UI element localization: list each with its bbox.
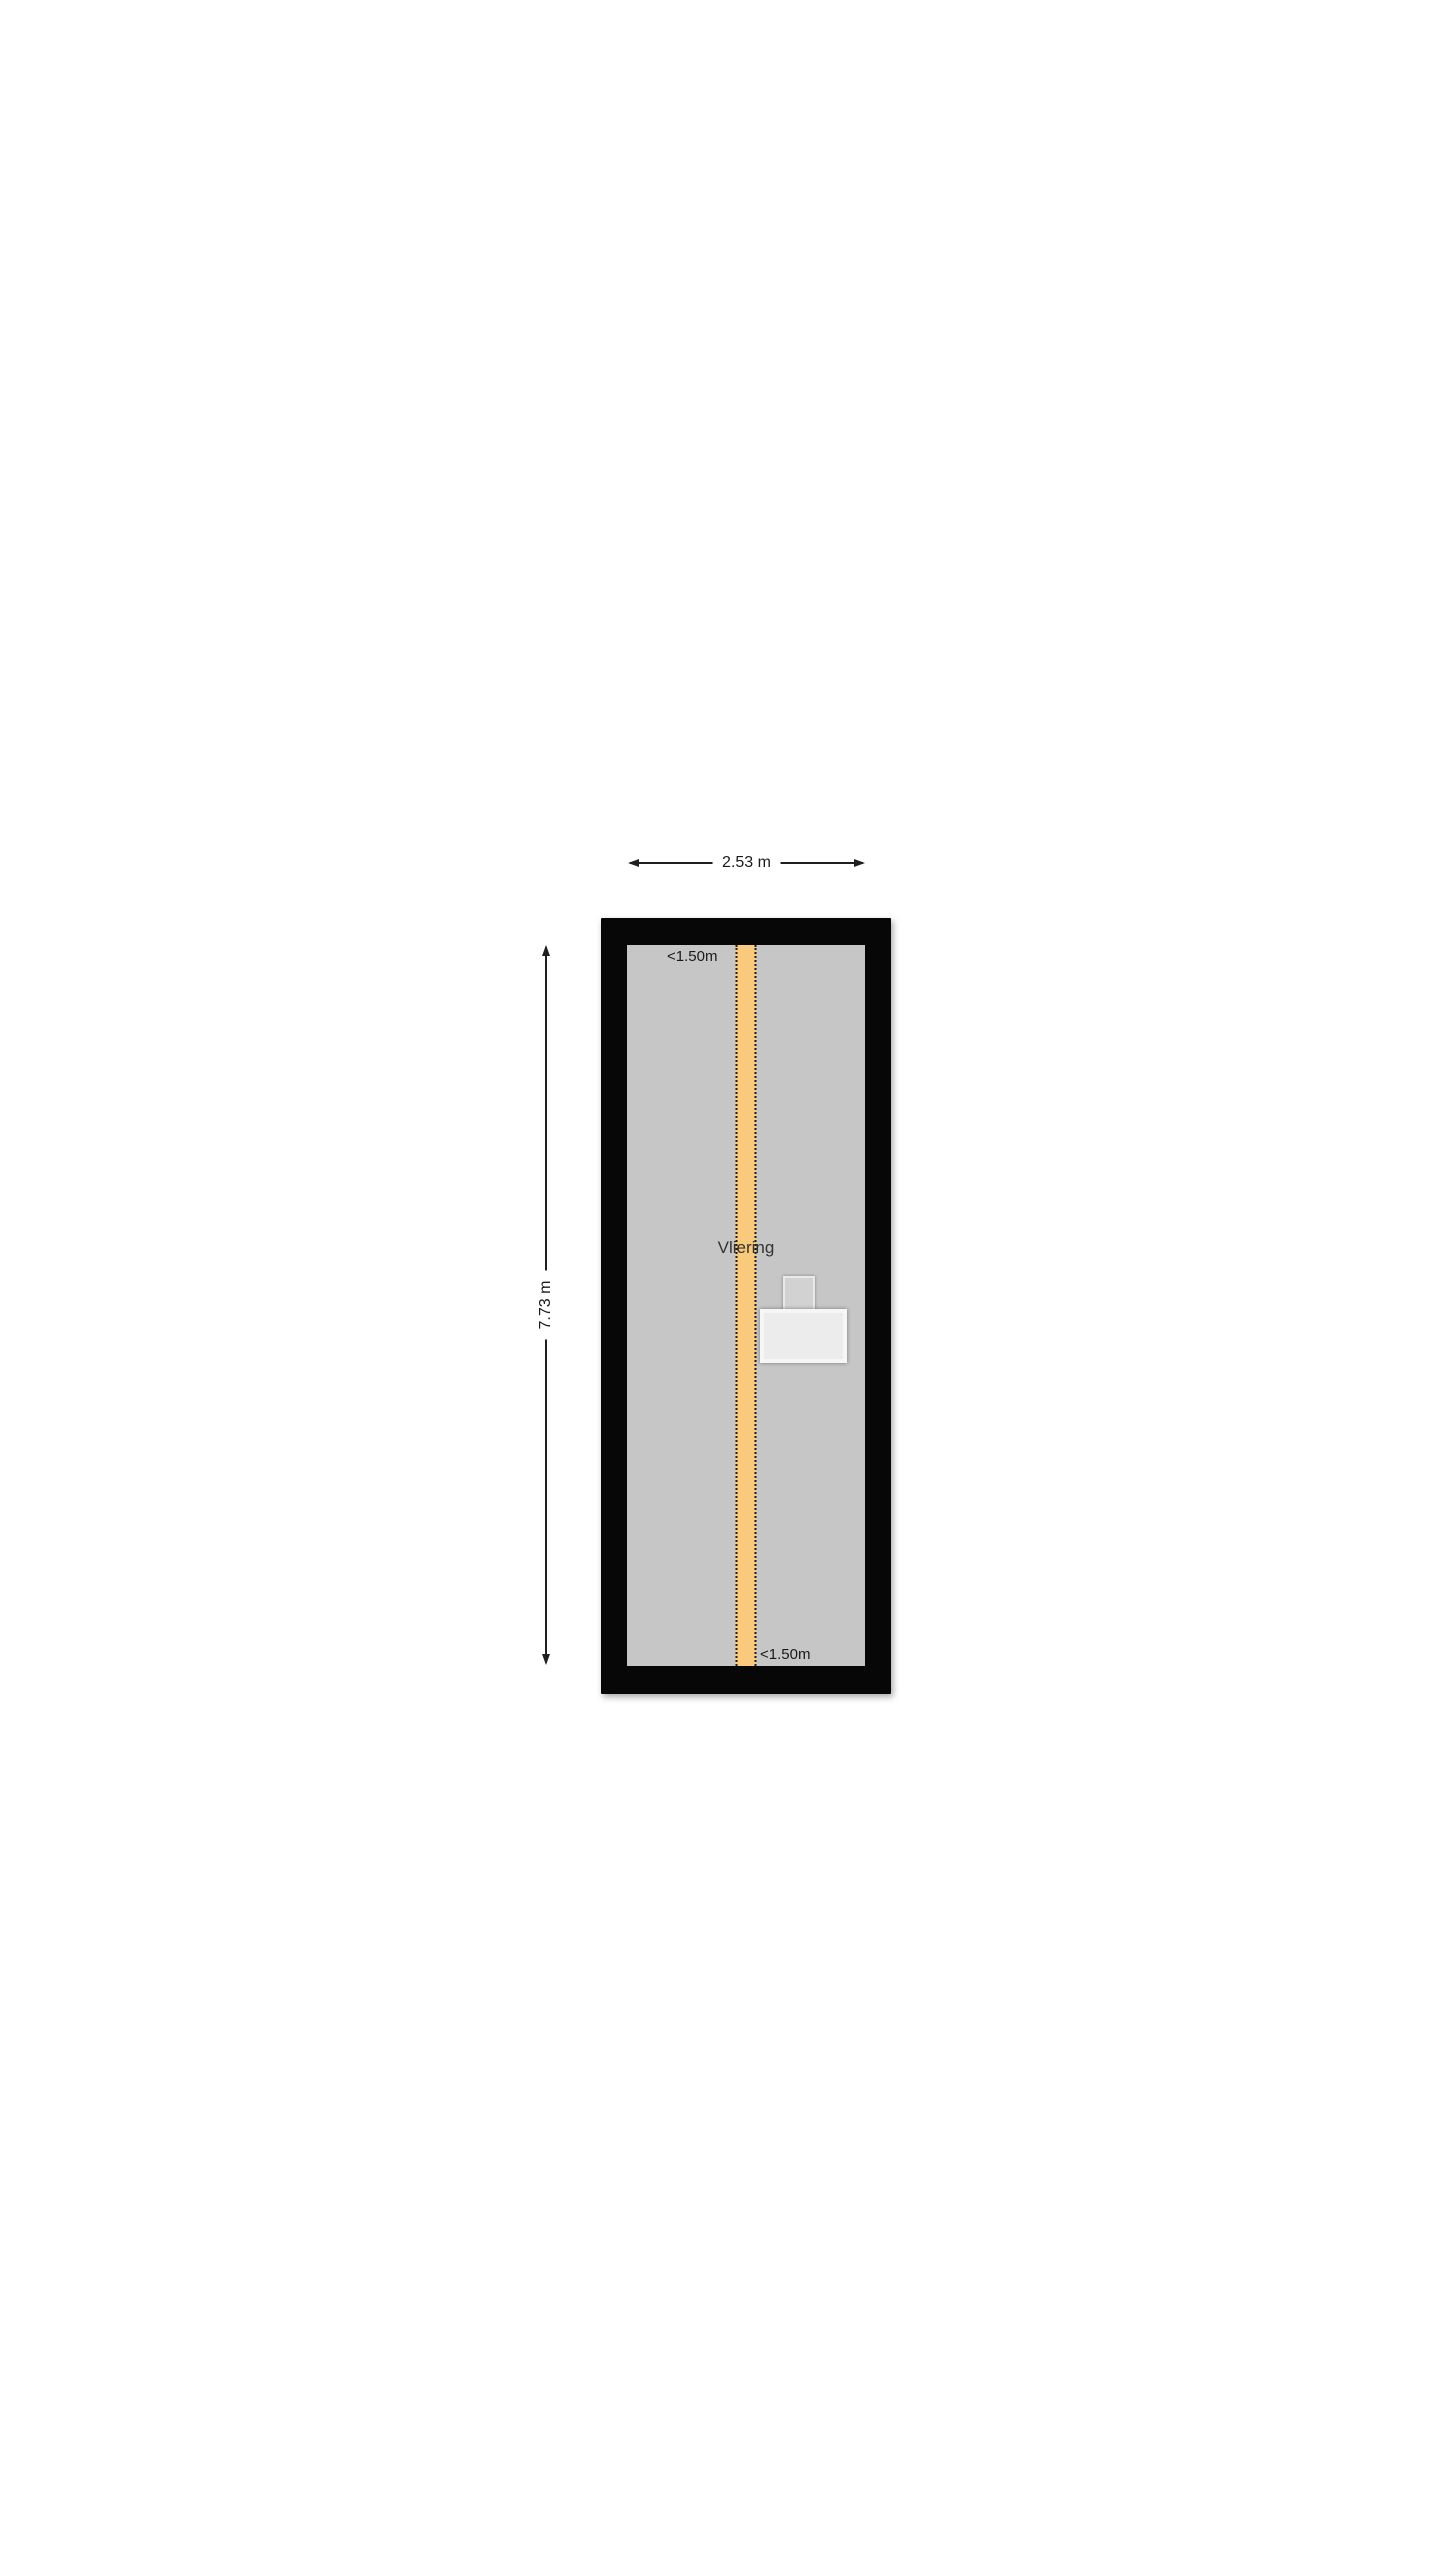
clearance-label-bottom: <1.50m [760, 1646, 810, 1663]
width-dimension-label: 2.53 m [712, 854, 781, 872]
arrow-right-icon [854, 859, 865, 867]
room-floor: <1.50m Vliering <1.50m [627, 945, 865, 1666]
low-headroom-strip [736, 945, 757, 1666]
room-walls: <1.50m Vliering <1.50m [601, 918, 891, 1694]
width-dimension: 2.53 m [628, 851, 865, 875]
height-dimension: 7.73 m [534, 945, 558, 1665]
height-dimension-label: 7.73 m [537, 1271, 555, 1340]
room-name-label: Vliering [718, 1238, 775, 1258]
chimney-base-shape [760, 1309, 847, 1363]
clearance-label-top: <1.50m [667, 948, 717, 965]
arrow-down-icon [542, 1654, 550, 1665]
floorplan-page: 2.53 m 7.73 m <1.50m Vliering <1.50m [0, 0, 1440, 2560]
